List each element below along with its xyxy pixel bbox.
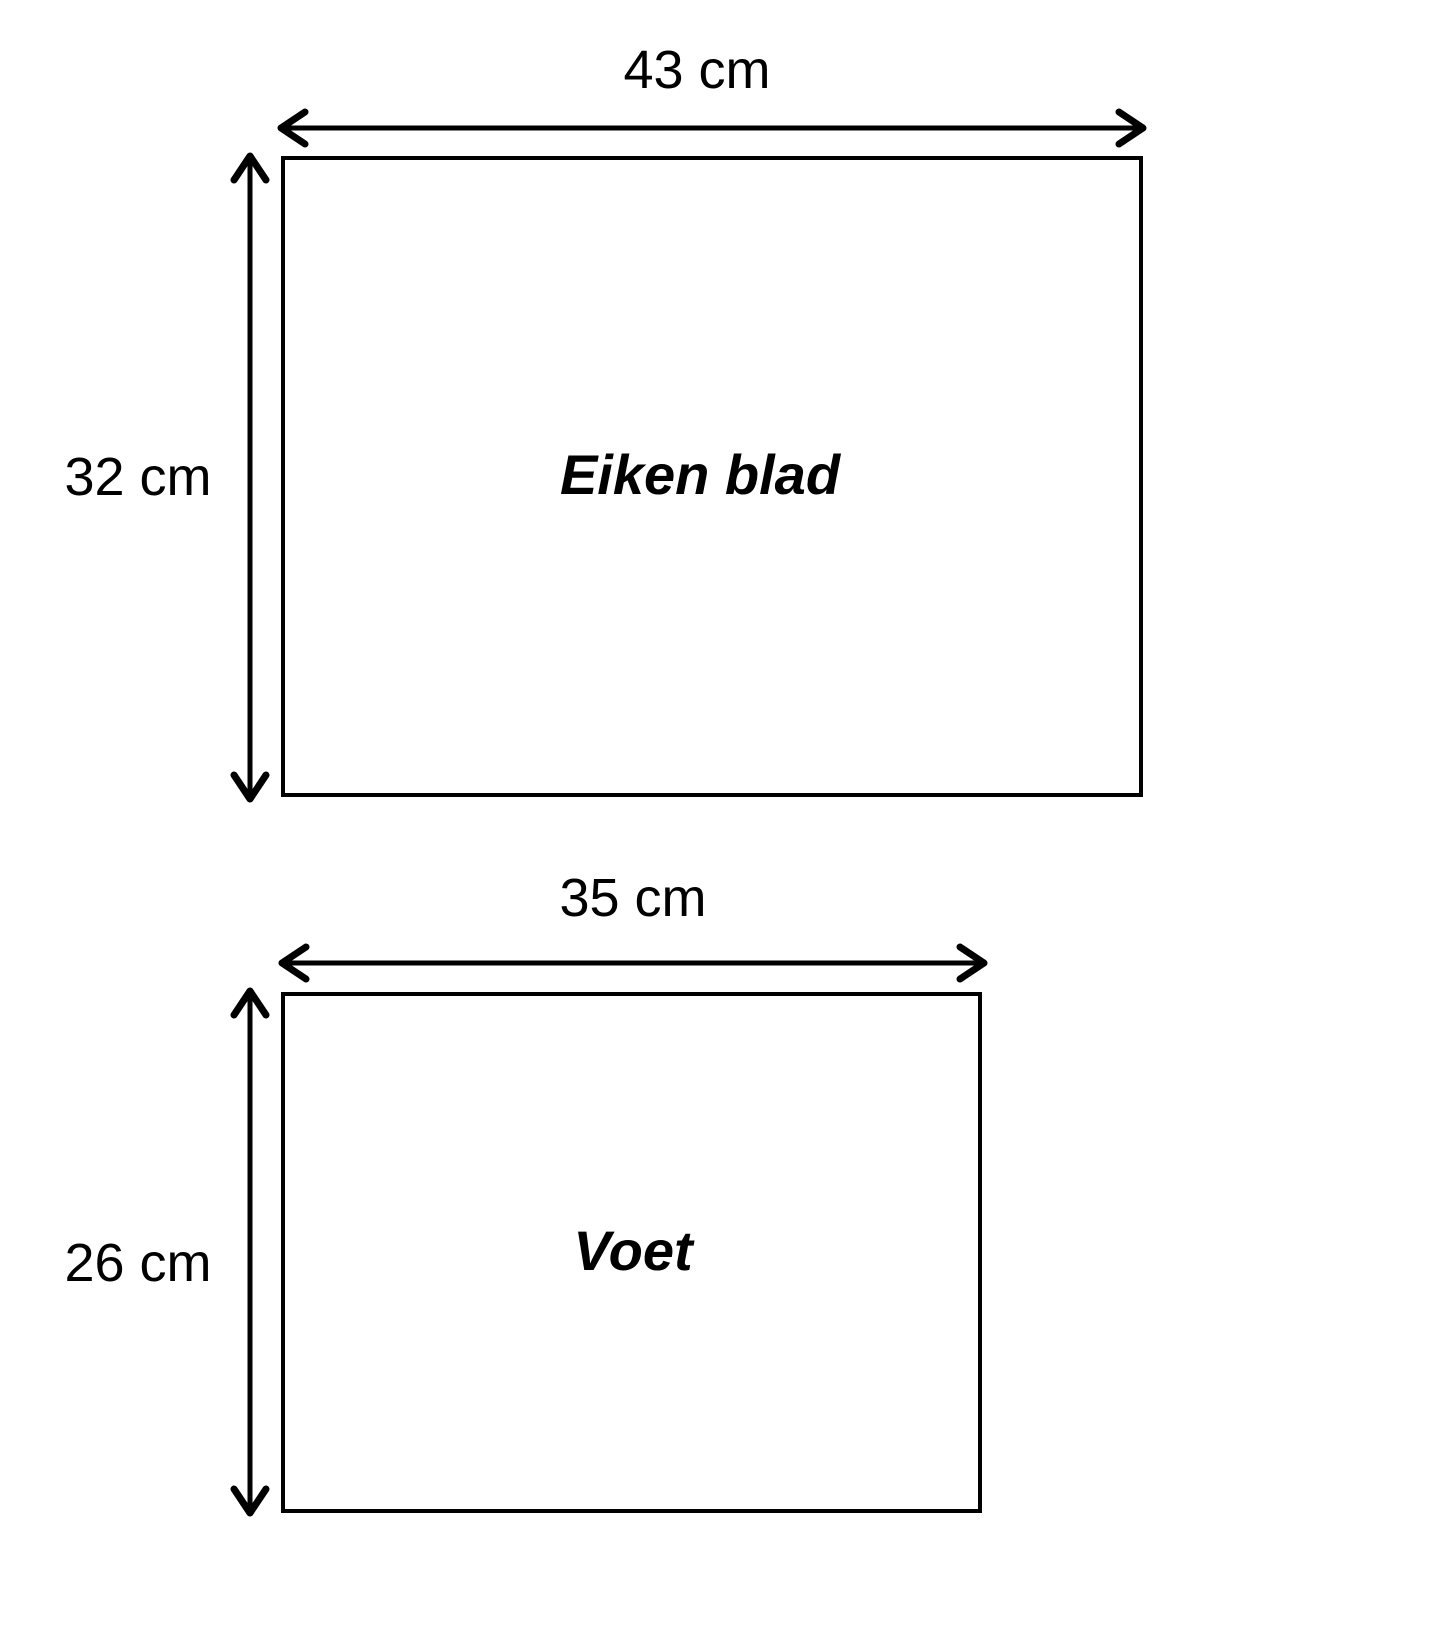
eiken-blad-height-label: 32 cm (64, 447, 211, 507)
eiken-blad-width-label: 43 cm (623, 40, 770, 100)
voet-width-label: 35 cm (559, 868, 706, 928)
shape-outlines (250, 128, 1143, 1513)
voet-height-label: 26 cm (64, 1233, 211, 1293)
voet-name-label: Voet (573, 1219, 695, 1282)
dimension-diagram: 43 cm 32 cm Eiken blad 35 cm 26 cm Voet (0, 0, 1432, 1627)
diagram-labels: 43 cm 32 cm Eiken blad 35 cm 26 cm Voet (64, 40, 841, 1293)
eiken-blad-name-label: Eiken blad (560, 443, 842, 506)
